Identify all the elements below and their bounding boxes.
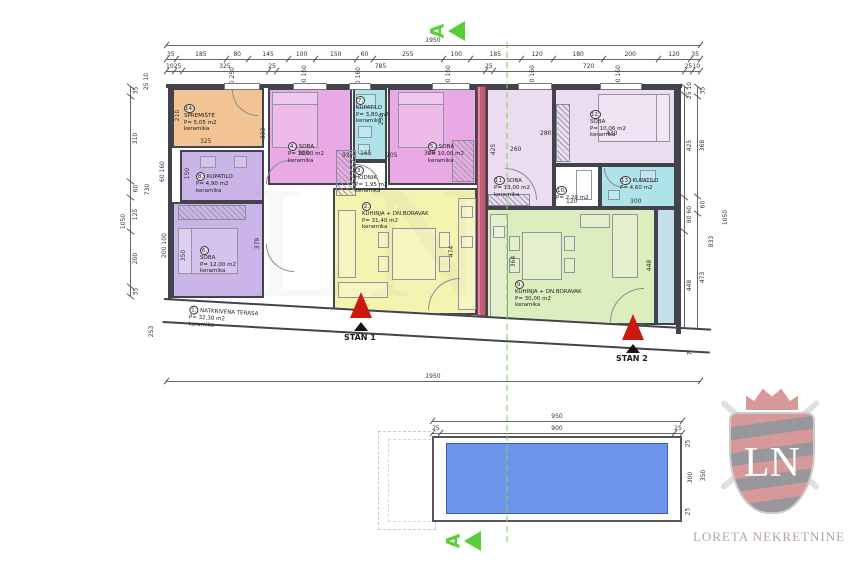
dim-inline: 260 bbox=[510, 146, 521, 153]
dim-window: 200 100 bbox=[161, 233, 168, 258]
room-label-13: 13. KUPATILO P= 4,60 m2 bbox=[620, 176, 658, 192]
room-label-11: 11. SOBA P= 13,00 m2 keramika bbox=[494, 176, 530, 198]
window bbox=[293, 83, 327, 90]
sink bbox=[358, 126, 372, 138]
dim-window: 60 160 bbox=[159, 161, 166, 182]
stan2-label: STAN 2 bbox=[616, 354, 648, 363]
section-marker-top: A bbox=[430, 20, 465, 42]
dim-pool-side: 25 bbox=[684, 508, 691, 516]
room-label-2: 2. KUHINJA + DN.BORAVAK P= 31,40 m2 kera… bbox=[362, 202, 429, 231]
entrance-marker-stan2 bbox=[622, 314, 644, 340]
chair bbox=[509, 236, 520, 251]
dim-left-sub: 25 10 bbox=[143, 73, 150, 90]
entrance-marker-stan1 bbox=[350, 292, 372, 318]
dim-inline: 364 bbox=[510, 256, 517, 267]
chair bbox=[564, 236, 575, 251]
agency-name: LORETA NEKRETNINE bbox=[688, 529, 850, 545]
room-label-7: 7. KUPATILO P= 3,80 m2 keramika bbox=[356, 96, 389, 125]
room-label-1: 1. NATKRIVENA TERASA P= 32,30 m2 keramik… bbox=[188, 305, 258, 331]
bed-pillow bbox=[272, 92, 318, 105]
window bbox=[349, 83, 371, 90]
dim-bottom-total: 1950 bbox=[166, 372, 700, 382]
room-label-8: 8. KUPATILO P= 4,90 m2 keramika bbox=[196, 172, 233, 194]
dining-table bbox=[522, 232, 562, 280]
sink bbox=[200, 156, 216, 168]
dim-inline: 300 bbox=[630, 198, 641, 205]
dim-inline: 448 bbox=[646, 260, 653, 271]
section-arrow-icon bbox=[448, 21, 465, 41]
room-label-4: 4. SOBA P= 10,00 m2 keramika bbox=[288, 142, 324, 164]
apartment-divider-wall bbox=[477, 86, 486, 316]
dim-left-total: 1050 bbox=[120, 214, 127, 229]
section-marker-bottom: A bbox=[446, 530, 481, 552]
chair bbox=[564, 258, 575, 273]
window bbox=[432, 83, 470, 90]
entrance-marker-stan1-base bbox=[354, 322, 368, 331]
stan1-label: STAN 1 bbox=[344, 333, 376, 342]
pool-water bbox=[446, 443, 668, 514]
section-arrow-icon bbox=[464, 531, 481, 551]
room-label-9: 9. KUHINJA + DN.BORAVAK P= 30,00 m2 kera… bbox=[515, 280, 582, 309]
window bbox=[518, 83, 552, 90]
dim-inline: 350 bbox=[180, 250, 187, 261]
section-letter: A bbox=[426, 24, 448, 39]
section-letter: A bbox=[442, 534, 464, 549]
bed-pillow bbox=[398, 92, 444, 105]
dim-inline: 150 bbox=[184, 168, 191, 179]
dim-left-mid: 730 bbox=[144, 184, 151, 195]
room-label-10: 10. P= 2,20 m2 bbox=[556, 186, 589, 202]
room-label-12: 12. SOBA P= 10,06 m2 keramika bbox=[590, 110, 626, 139]
sofa bbox=[580, 214, 610, 228]
toilet bbox=[234, 156, 247, 168]
room-label-14: 14. SPREMIŠTE P= 5,05 m2 keramika bbox=[184, 104, 217, 133]
wardrobe-hatch bbox=[178, 205, 246, 220]
dim-pool-sub: 25 900 25 bbox=[432, 424, 682, 434]
dim-right-total: 1050 bbox=[722, 210, 729, 225]
shield-icon: LN bbox=[729, 412, 815, 514]
dim-pool-total: 950 bbox=[432, 412, 682, 422]
sofa bbox=[612, 214, 638, 278]
dim-top-segments: 35 185 80 145 100 150 60 255 100 185 120… bbox=[166, 50, 700, 60]
bed-pillow bbox=[656, 94, 670, 142]
dim-right-col2: 35 368 60 473 bbox=[697, 86, 708, 342]
toilet bbox=[608, 190, 620, 200]
room-label-6: 6. SOBA P= 12,00 m2 keramika bbox=[200, 246, 236, 275]
outer-wall-right bbox=[676, 84, 681, 334]
room-label-3: 3. HODNIK P= 1,95 m2 keramika bbox=[355, 166, 388, 195]
wardrobe-hatch bbox=[556, 104, 570, 162]
entrance-marker-stan2-base bbox=[626, 344, 640, 353]
crown-icon bbox=[746, 384, 798, 410]
dim-pool-side: 25 bbox=[684, 440, 691, 448]
dim-inline: 333 bbox=[260, 128, 267, 139]
dim-left-segments: 35 310 60 125 200 35 bbox=[130, 86, 141, 296]
agency-logo: LN bbox=[700, 382, 850, 532]
window bbox=[600, 83, 642, 90]
window bbox=[224, 83, 260, 90]
dim-right-col1: 25 10 425 80 60 448 bbox=[684, 86, 695, 340]
dim-inline: 280 bbox=[540, 130, 551, 137]
room-side-strip bbox=[656, 208, 676, 325]
dim-pool-height: 300 bbox=[687, 472, 694, 483]
dim-right-mid: 833 bbox=[708, 236, 715, 247]
floor-plan-drawing: LN 1950 35 185 80 145 100 150 60 255 100… bbox=[0, 0, 855, 570]
pool-ghost-outline bbox=[388, 439, 436, 522]
section-line bbox=[506, 42, 508, 542]
dim-left-bottom: 253 bbox=[148, 326, 155, 337]
dim-inline: 325 bbox=[200, 138, 211, 145]
dim-inline: 210 bbox=[174, 110, 181, 121]
outer-wall-left bbox=[168, 84, 172, 300]
room-label-5: 5. SOBA P= 10,00 m2 keramika bbox=[428, 142, 464, 164]
logo-initials: LN bbox=[744, 442, 800, 484]
